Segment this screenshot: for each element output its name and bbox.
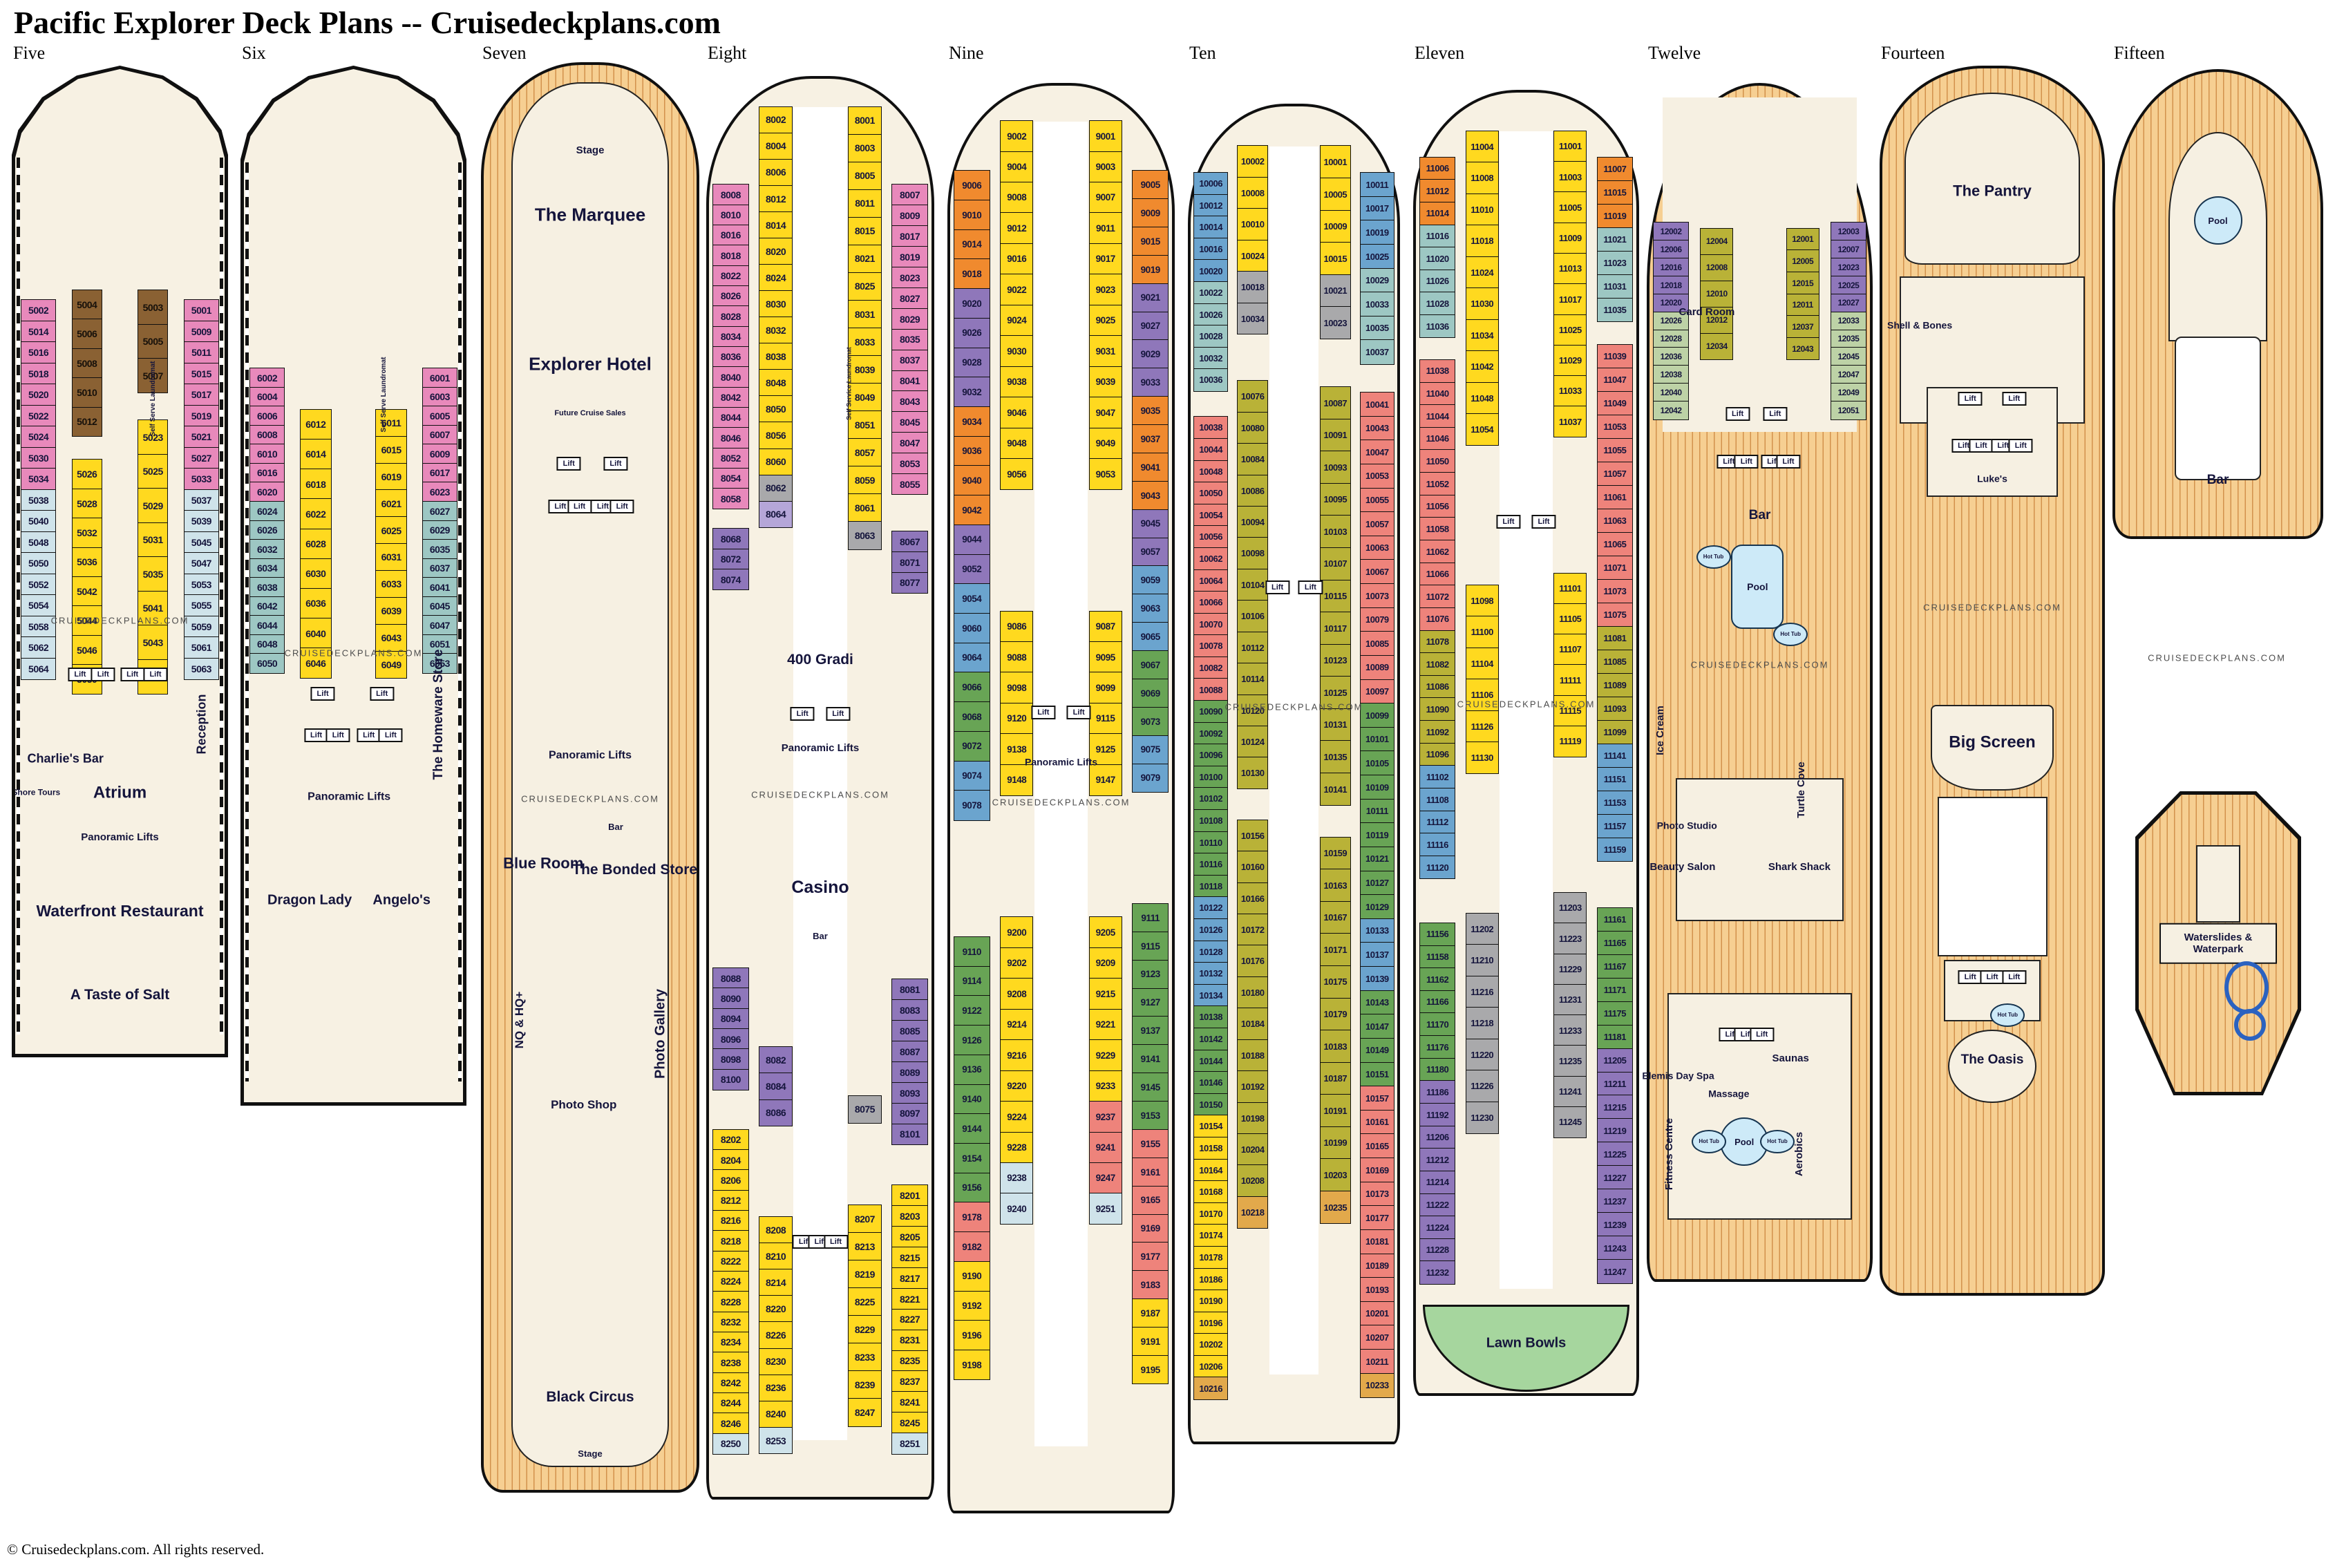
cabin: 10167: [1320, 901, 1351, 934]
cabin: 10168: [1193, 1180, 1227, 1203]
venue-label: Panoramic Lifts: [1025, 757, 1097, 768]
cabin: 10107: [1320, 547, 1351, 580]
cabin: 10026: [1193, 303, 1227, 326]
lift-box: Lift: [567, 500, 592, 513]
cabin: 10149: [1360, 1038, 1394, 1063]
cabin: 8212: [712, 1190, 749, 1211]
deck-panel: [1676, 778, 1843, 921]
lift-box: Lift: [826, 707, 850, 721]
cabin: 9018: [954, 258, 990, 289]
cabin: 12042: [1653, 401, 1690, 419]
cabin: 10064: [1193, 569, 1227, 592]
cabin: 8087: [891, 1041, 928, 1062]
cabin: 8219: [848, 1260, 881, 1289]
cabin: 10177: [1360, 1205, 1394, 1230]
cabin: 5038: [21, 489, 57, 511]
cabin: 10112: [1237, 632, 1268, 664]
cabin: 5026: [72, 459, 102, 489]
watermark: CRUISEDECKPLANS.COM: [51, 616, 189, 626]
cabin: 5042: [72, 576, 102, 607]
cabin: 8028: [712, 305, 749, 327]
cabin-gap: [1320, 806, 1351, 838]
cabin: 12005: [1786, 249, 1819, 272]
cabin: 11007: [1597, 157, 1634, 181]
cabin: 12038: [1653, 365, 1690, 384]
cabin: 12049: [1831, 383, 1867, 402]
cabin: 10038: [1193, 416, 1227, 439]
cabin: 10084: [1237, 443, 1268, 475]
page-title: Pacific Explorer Deck Plans -- Cruisedec…: [14, 4, 721, 41]
cabin: 9067: [1132, 650, 1169, 679]
cabin: 10164: [1193, 1159, 1227, 1182]
cabin: 6038: [249, 577, 285, 597]
cabin: 9153: [1132, 1101, 1169, 1130]
venue-label: Self Serve Laundromat: [150, 361, 158, 437]
cabin: 6024: [249, 501, 285, 521]
cabin: 10133: [1360, 918, 1394, 943]
cabin-gap: [848, 1124, 881, 1206]
cabin: 9035: [1132, 396, 1169, 425]
deck-fill: Waterslides & Waterpark: [2139, 795, 2298, 1092]
cabin: 5002: [21, 299, 57, 321]
cabin: 10037: [1360, 339, 1394, 364]
cabin: 9075: [1132, 735, 1169, 764]
deck-name-six: Six: [242, 43, 266, 64]
cabin: 12007: [1831, 240, 1867, 258]
cabin: 9136: [954, 1055, 990, 1085]
cabin: 8020: [759, 238, 792, 265]
venue-label: Bar: [1749, 509, 1771, 522]
cabin: 10094: [1237, 506, 1268, 538]
cabin: 10184: [1237, 1008, 1268, 1040]
cabin: 5045: [184, 531, 220, 554]
cabin: 8218: [712, 1230, 749, 1251]
cabin: 6006: [249, 406, 285, 426]
cabin-gap: [712, 509, 749, 529]
cabin-gap: [891, 594, 928, 980]
cabin-column: 9005900990159019902190279029903390359037…: [1132, 171, 1169, 1468]
cabin: 10043: [1360, 416, 1394, 441]
cabin: 10137: [1360, 942, 1394, 967]
cabin: 8043: [891, 390, 928, 412]
cabin: 11048: [1466, 382, 1499, 415]
deck-six: 6002600460066008601060166020602460266032…: [240, 66, 466, 1106]
cabin: 10119: [1360, 822, 1394, 847]
cabin: 8247: [848, 1398, 881, 1427]
lift-box: Lift: [379, 728, 403, 742]
cabin: 5014: [21, 321, 57, 343]
cabin: 10099: [1360, 703, 1394, 728]
venue-label: Waterfront Restaurant: [37, 903, 204, 919]
cabin: 10142: [1193, 1028, 1227, 1050]
cabin: 10087: [1320, 386, 1351, 419]
cabin: 9228: [1000, 1132, 1033, 1164]
venue-label: A Taste of Salt: [70, 987, 170, 1002]
cabin: 11098: [1466, 585, 1499, 617]
cabin: 6007: [422, 425, 457, 445]
cabin-column: 1200412008120101201212034: [1700, 229, 1733, 360]
cabin: 11223: [1553, 923, 1587, 954]
cabin: 10009: [1320, 210, 1351, 243]
cabin: 8237: [891, 1370, 928, 1392]
cabin-column: 5004500650085010501250265028503250365042…: [72, 291, 102, 695]
cabin-gap: [1132, 1384, 1169, 1468]
cabin: 6034: [249, 558, 285, 578]
cabin: 11170: [1419, 1012, 1456, 1036]
cabin: 11086: [1419, 675, 1456, 699]
cabin: 11017: [1553, 283, 1587, 315]
cabin: 9026: [954, 318, 990, 348]
cabin: 12016: [1653, 258, 1690, 276]
cabin-gap: [1237, 789, 1268, 820]
cabin: 8081: [891, 979, 928, 1000]
cabin: 11161: [1597, 907, 1634, 932]
cabin: 11112: [1419, 811, 1456, 834]
cabin: 11008: [1466, 162, 1499, 194]
cabin: 8033: [848, 328, 881, 357]
cabin: 10022: [1193, 281, 1227, 304]
cabin: 10078: [1193, 634, 1227, 657]
cabin: 8242: [712, 1372, 749, 1394]
cabin: 8050: [759, 395, 792, 423]
cabin: 9220: [1000, 1070, 1033, 1102]
cabin: 8058: [712, 488, 749, 509]
deck-eight: 8008801080168018802280268028803480368040…: [706, 76, 934, 1500]
cabin: 10106: [1237, 600, 1268, 632]
cabin: 11012: [1419, 179, 1456, 202]
venue-label: Card Room: [1679, 307, 1735, 318]
cabin: 6029: [422, 520, 457, 540]
cabin: 6004: [249, 387, 285, 407]
cabin: 11096: [1419, 743, 1456, 766]
cabin: 5004: [72, 290, 102, 320]
cabin: 11052: [1419, 472, 1456, 495]
cabin: 8226: [759, 1321, 792, 1349]
cabin: 8232: [712, 1312, 749, 1333]
cabin: 8063: [848, 521, 881, 550]
cabin: 8068: [712, 528, 749, 549]
cabin-column: 9001900390079011901790239025903190399047…: [1089, 122, 1122, 1468]
cabin: 8001: [848, 106, 881, 135]
venue-label: Bar: [813, 932, 828, 942]
cabin: 8014: [759, 211, 792, 239]
deck-twelve: 1200212006120161201812020120261202812036…: [1647, 83, 1873, 1282]
cabin: 8207: [848, 1205, 881, 1234]
cabin: 9043: [1132, 481, 1169, 510]
cabin: 5021: [184, 426, 220, 448]
cabin: 10032: [1193, 347, 1227, 370]
cabin: 8023: [891, 267, 928, 288]
cabin: 10158: [1193, 1137, 1227, 1160]
cabin: 10034: [1237, 303, 1268, 335]
cabin: 8044: [712, 407, 749, 428]
cabin: 11071: [1597, 556, 1634, 580]
cabin: 9161: [1132, 1158, 1169, 1187]
cabin: 9088: [1000, 641, 1033, 673]
cabin: 8048: [759, 369, 792, 397]
lift-box: Lift: [1776, 455, 1800, 469]
cabin: 11237: [1597, 1189, 1634, 1213]
cabin: 8053: [891, 453, 928, 474]
cabin: 10024: [1237, 240, 1268, 272]
cabin: 11165: [1597, 931, 1634, 955]
cabin: 9031: [1089, 335, 1122, 367]
cabin: 9195: [1132, 1355, 1169, 1384]
cabin: 8036: [712, 346, 749, 368]
cabin: 9178: [954, 1202, 990, 1232]
cabin: 11218: [1466, 1007, 1499, 1039]
cabin: 9012: [1000, 212, 1033, 244]
cabin: 10105: [1360, 750, 1394, 775]
cabin: 9068: [954, 701, 990, 732]
cabin-gap: [1089, 1225, 1122, 1468]
cabin: 11192: [1419, 1103, 1456, 1126]
cabin: 12011: [1786, 294, 1819, 317]
cabin: 11004: [1466, 131, 1499, 163]
cabin: 10173: [1360, 1182, 1394, 1207]
cabin: 9087: [1089, 611, 1122, 643]
cabin-gap: [954, 821, 990, 938]
cabin: 5029: [138, 488, 168, 523]
cabin: 10176: [1237, 945, 1268, 977]
cabin: 10016: [1193, 238, 1227, 261]
cabin: 9099: [1089, 672, 1122, 703]
cabin: 8088: [712, 967, 749, 989]
cabin: 10092: [1193, 722, 1227, 745]
venue-label: The Homeware Store: [432, 650, 446, 780]
cabin: 6033: [375, 570, 407, 598]
cabin: 8030: [759, 290, 792, 318]
cabin: 8021: [848, 245, 881, 274]
cabin: 11222: [1419, 1193, 1456, 1217]
cabin: 9127: [1132, 988, 1169, 1017]
cabin-column: 1100711015110191102111023110311103511039…: [1597, 158, 1634, 1296]
cabin: 6002: [249, 368, 285, 388]
cabin: 8097: [891, 1103, 928, 1124]
cabin: 12004: [1700, 228, 1733, 256]
cabin: 9003: [1089, 151, 1122, 183]
cabin: 5032: [72, 518, 102, 548]
cabin: 10189: [1360, 1254, 1394, 1278]
cabin: 8250: [712, 1433, 749, 1455]
cabin: 10005: [1320, 178, 1351, 211]
cabin-gap: [72, 437, 102, 460]
cabin-gap: [1000, 490, 1033, 612]
lift-box: Lift: [143, 668, 167, 681]
cabin: 10150: [1193, 1093, 1227, 1116]
lift-box: Lift: [1265, 580, 1289, 594]
cabin: 8022: [712, 265, 749, 287]
cabin: 10054: [1193, 504, 1227, 527]
cabin: 9155: [1132, 1129, 1169, 1158]
cabin: 8224: [712, 1271, 749, 1292]
cabin: 9110: [954, 936, 990, 967]
cabin: 11061: [1597, 485, 1634, 509]
cabin: 10056: [1193, 525, 1227, 548]
cabin: 10121: [1360, 847, 1394, 871]
venue-label: Explorer Hotel: [529, 355, 652, 373]
cabin: 10172: [1237, 914, 1268, 946]
cabin-gap: [1597, 322, 1634, 345]
venue-label: Reception: [195, 694, 208, 754]
cabin: 5035: [138, 556, 168, 592]
venue-label: Stage: [578, 1450, 602, 1460]
deck-panel: [1904, 93, 2080, 264]
cabin: 9036: [954, 436, 990, 466]
cabin: 8230: [759, 1348, 792, 1376]
cabin: 11065: [1597, 532, 1634, 556]
cabin: 10033: [1360, 292, 1394, 317]
deck-name-eleven: Eleven: [1415, 43, 1464, 64]
cabin: 9095: [1089, 641, 1122, 673]
cabin: 11120: [1419, 856, 1456, 879]
cabin: 11019: [1597, 204, 1634, 228]
cabin: 11239: [1597, 1212, 1634, 1236]
cabin: 11111: [1553, 664, 1587, 696]
cabin: 10109: [1360, 775, 1394, 800]
cabin: 9042: [954, 495, 990, 525]
lift-box: Lift: [1969, 439, 1994, 453]
lift-box: Lift: [791, 707, 815, 721]
cabin: 9137: [1132, 1016, 1169, 1045]
watermark: CRUISEDECKPLANS.COM: [751, 790, 889, 800]
pool: Pool: [1731, 545, 1784, 629]
cabin: 8217: [891, 1267, 928, 1289]
waterslide-icon: [2224, 961, 2269, 1014]
cabin: 6039: [375, 597, 407, 625]
cabin-column: 6001600360056007600960176023602760296035…: [422, 369, 457, 674]
cabin: 8049: [848, 383, 881, 412]
cabin: 11159: [1597, 838, 1634, 862]
venue-label: 400 Gradi: [787, 652, 853, 668]
cabin: 12037: [1786, 315, 1819, 338]
cabin: 11055: [1597, 438, 1634, 462]
cabin: 10151: [1360, 1062, 1394, 1087]
cabin: 8084: [759, 1073, 792, 1100]
venue-label: Ice Cream: [1655, 706, 1666, 755]
cabin: 11214: [1419, 1171, 1456, 1194]
cabin: 11099: [1597, 720, 1634, 744]
cabin: 10055: [1360, 488, 1394, 513]
cabin: 11153: [1597, 791, 1634, 815]
cabin: 10122: [1193, 896, 1227, 919]
lift-box: Lift: [1725, 407, 1750, 421]
cabin: 8236: [759, 1375, 792, 1402]
cabin: 10080: [1237, 412, 1268, 444]
cabin: 9040: [954, 465, 990, 495]
cabin: 12006: [1653, 240, 1690, 258]
cabin: 8064: [759, 501, 792, 529]
cabin: 10204: [1237, 1133, 1268, 1166]
cabin: 9007: [1089, 182, 1122, 214]
cabin: 5008: [72, 348, 102, 379]
cabin: 5055: [184, 594, 220, 616]
cabin: 11036: [1419, 314, 1456, 338]
cabin-gap: [1419, 338, 1456, 360]
cabin: 6008: [249, 425, 285, 445]
cabin: 12002: [1653, 222, 1690, 240]
cabin-gap: [1360, 1398, 1394, 1421]
venue-label: Bar: [608, 822, 623, 832]
cabin: 6044: [249, 615, 285, 635]
cabin: 8010: [712, 205, 749, 226]
venue-label: The Marquee: [535, 205, 645, 224]
lift-box: Lift: [1298, 580, 1323, 594]
deck-eleven: 1100611012110141101611020110261102811036…: [1413, 90, 1639, 1396]
cabin: 10093: [1320, 451, 1351, 484]
cabin: 9038: [1000, 366, 1033, 398]
cabin: 10012: [1193, 194, 1227, 217]
cabin: 11081: [1597, 626, 1634, 650]
cabin: 5017: [184, 384, 220, 406]
cabin: 8077: [891, 572, 928, 594]
deck-panel: [1938, 797, 2048, 956]
cabin: 8201: [891, 1184, 928, 1206]
deck-name-fourteen: Fourteen: [1881, 43, 1945, 64]
cabin: 11035: [1597, 298, 1634, 322]
cabin: 11241: [1553, 1076, 1587, 1108]
deck-panel: [17, 158, 20, 1034]
cabin: 9039: [1089, 366, 1122, 398]
venue-label: Self Service Laundromat: [846, 347, 852, 420]
cabin: 10207: [1360, 1325, 1394, 1350]
cabin: 10018: [1237, 271, 1268, 303]
cabin: 11107: [1553, 634, 1587, 665]
cabin: 10053: [1360, 464, 1394, 489]
lift-box: Lift: [1958, 392, 1983, 406]
deck-panel: [511, 82, 669, 1467]
cabin: 11030: [1466, 287, 1499, 320]
cabin: 10132: [1193, 962, 1227, 985]
cabin: 11039: [1597, 344, 1634, 368]
cabin: 9016: [1000, 243, 1033, 275]
cabin: 5012: [72, 407, 102, 437]
cabin: 5009: [184, 321, 220, 343]
cabin: 10028: [1193, 325, 1227, 348]
cabin: 9049: [1089, 428, 1122, 460]
cabin: 6031: [375, 543, 407, 571]
cabin: 9115: [1089, 703, 1122, 735]
venue-label: Shark Shack: [1768, 862, 1831, 873]
cabin: 9052: [954, 554, 990, 585]
cabin: 9114: [954, 966, 990, 996]
cabin: 11040: [1419, 382, 1456, 406]
cabin: 8085: [891, 1020, 928, 1041]
cabin: 11102: [1419, 765, 1456, 788]
cabin: 10008: [1237, 177, 1268, 209]
cabin-gap: [1320, 1224, 1351, 1415]
cabin: 10175: [1320, 965, 1351, 999]
cabin-column: 1001110017100191002510029100331003510037…: [1360, 173, 1394, 1421]
cabin: 5046: [72, 635, 102, 665]
cabin: 9145: [1132, 1073, 1169, 1102]
cabin-column: 8002800480068012801480208024803080328038…: [759, 107, 792, 1454]
cabin: 6005: [422, 406, 457, 426]
cabin: 9148: [1000, 764, 1033, 796]
cabin: 5025: [138, 454, 168, 489]
lift-box: Lift: [2009, 439, 2033, 453]
cabin: 5024: [21, 426, 57, 448]
cabin: 10206: [1193, 1355, 1227, 1378]
cabin-column: 1000610012100141001610020100221002610028…: [1193, 173, 1227, 1421]
cabin: 10134: [1193, 984, 1227, 1007]
cabin: 9165: [1132, 1186, 1169, 1215]
cabin: 11162: [1419, 967, 1456, 991]
deck-name-eight: Eight: [708, 43, 746, 64]
cabin: 8210: [759, 1243, 792, 1270]
cabin: 11078: [1419, 630, 1456, 654]
cabin: 6026: [249, 520, 285, 540]
